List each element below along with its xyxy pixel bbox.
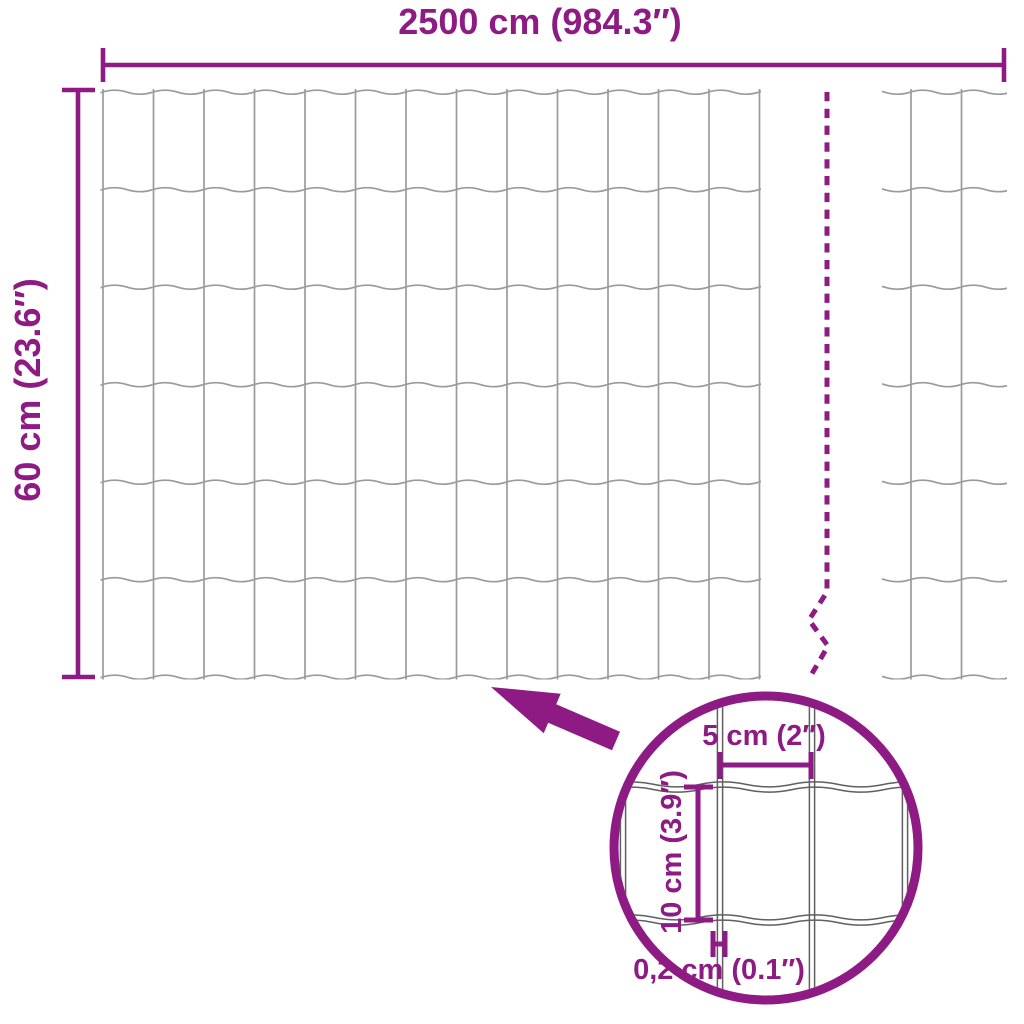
cell-width-label: 5 cm (2″) [702,720,826,752]
cell-height-label: 10 cm (3.9″) [656,770,688,934]
wire-thickness-label: 0,2 cm (0.1″) [633,954,805,986]
mesh-panel-main [101,89,762,680]
height-label: 60 cm (23.6″) [7,278,48,501]
product-dimension-diagram: 2500 cm (984.3″) 60 cm (23.6″) [0,0,1024,1024]
width-label: 2500 cm (984.3″) [398,1,681,42]
mesh-panel-right [882,89,1007,680]
